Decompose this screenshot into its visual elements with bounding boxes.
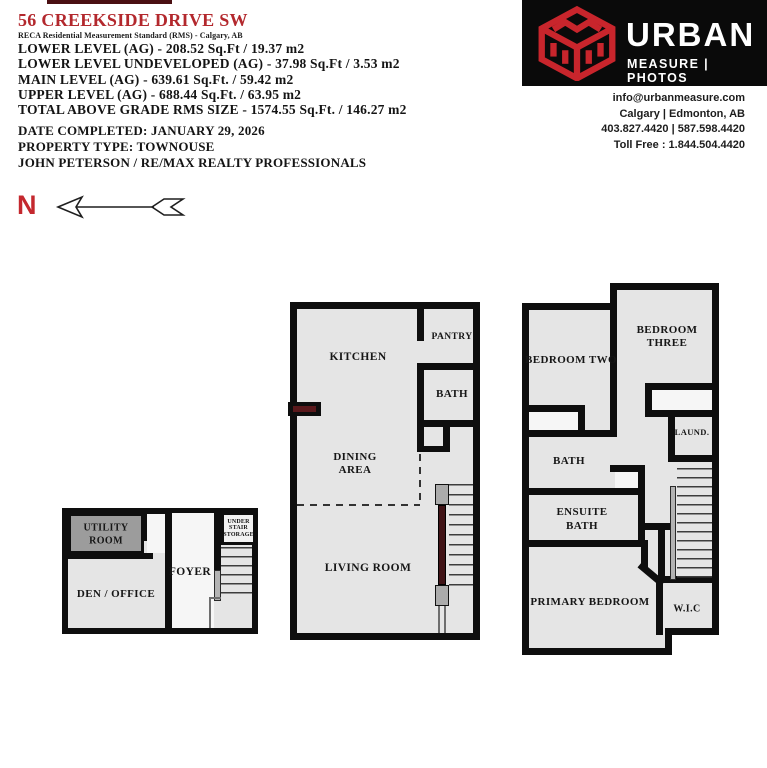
wall-segment xyxy=(522,303,617,310)
wall-segment xyxy=(529,430,617,437)
wall-segment xyxy=(141,513,147,541)
wall-segment xyxy=(522,488,645,495)
room-label-dining: AREA xyxy=(339,464,372,476)
room-label-bedroom-three: THREE xyxy=(647,337,688,349)
room-label-ensuite: BATH xyxy=(566,520,598,532)
wall-segment xyxy=(417,420,480,427)
stair-landing-line xyxy=(209,597,211,628)
wall-segment xyxy=(645,410,719,417)
main-stairs-railing xyxy=(438,505,446,585)
stair-wall-line xyxy=(444,606,446,633)
wall-segment xyxy=(656,583,663,635)
room-label-pantry: PANTRY xyxy=(432,332,473,342)
brand-name: URBAN xyxy=(626,16,755,54)
north-label: N xyxy=(17,190,37,221)
wall-segment xyxy=(610,283,719,290)
room-label-bath-upper: BATH xyxy=(553,455,585,467)
contact-block: info@urbanmeasure.com Calgary | Edmonton… xyxy=(601,91,745,153)
under-stair-label-line: STORAGE xyxy=(223,532,254,539)
wall-segment xyxy=(417,446,450,452)
room-label-laundry: LAUND. xyxy=(675,427,710,437)
utility-room-area xyxy=(68,513,144,554)
measurement-summary: LOWER LEVEL (AG) - 208.52 Sq.Ft / 19.37 … xyxy=(18,41,407,117)
measurement-line: TOTAL ABOVE GRADE RMS SIZE - 1574.55 Sq.… xyxy=(18,102,407,117)
wall-segment xyxy=(68,553,153,559)
date-completed-line: DATE COMPLETED: JANUARY 29, 2026 xyxy=(18,123,366,139)
wall-segment xyxy=(712,283,719,635)
wall-segment xyxy=(417,370,424,427)
wall-segment xyxy=(610,310,617,437)
upper-stairs-railing xyxy=(670,486,676,580)
room-label-dining: DINING xyxy=(333,451,376,463)
closet-fill xyxy=(652,390,712,410)
fireplace-icon xyxy=(293,406,316,412)
dining-boundary-dashed-line xyxy=(419,454,421,506)
main-stairs-newel-cap xyxy=(435,585,449,606)
wall-segment xyxy=(214,513,221,570)
room-label-ensuite: ENSUITE xyxy=(556,506,607,518)
measurement-standard-line: RECA Residential Measurement Standard (R… xyxy=(18,31,243,40)
wall-segment xyxy=(522,648,672,655)
north-arrow-icon xyxy=(52,193,192,221)
urban-measure-cube-logo-icon xyxy=(530,5,624,81)
room-label-den-office: DEN / OFFICE xyxy=(77,588,155,600)
measurement-line: MAIN LEVEL (AG) - 639.61 Sq.Ft. / 59.42 … xyxy=(18,72,407,87)
room-label-kitchen: KITCHEN xyxy=(329,351,386,363)
room-label-primary-bedroom: PRIMARY BEDROOM xyxy=(530,596,649,608)
stair-landing-line xyxy=(209,597,221,599)
lower-stairs-treads xyxy=(221,547,252,601)
under-stair-storage-area: UNDER STAIR STORAGE xyxy=(221,512,256,545)
main-stairs-newel-cap xyxy=(435,484,449,505)
report-details: DATE COMPLETED: JANUARY 29, 2026 PROPERT… xyxy=(18,123,366,170)
stair-wall-line xyxy=(438,606,440,633)
contact-tollfree: Toll Free : 1.844.504.4420 xyxy=(601,138,745,154)
contact-locations: Calgary | Edmonton, AB xyxy=(601,107,745,123)
brand-tagline: MEASURE | PHOTOS xyxy=(627,57,767,85)
lower-closet-fill xyxy=(147,514,165,553)
room-label-utility: UTILITY xyxy=(83,523,128,534)
wall-segment xyxy=(522,540,645,547)
agent-line: JOHN PETERSON / RE/MAX REALTY PROFESSION… xyxy=(18,155,366,171)
room-label-foyer: FOYER xyxy=(169,566,211,578)
closet-fill xyxy=(529,412,578,430)
measurement-line: LOWER LEVEL UNDEVELOPED (AG) - 37.98 Sq.… xyxy=(18,56,407,71)
floorplan-document-page: 56 CREEKSIDE DRIVE SW RECA Residential M… xyxy=(0,0,767,768)
measurement-line: LOWER LEVEL (AG) - 208.52 Sq.Ft / 19.37 … xyxy=(18,41,407,56)
room-label-living-room: LIVING ROOM xyxy=(325,562,412,574)
room-label-wic: W.I.C xyxy=(673,604,700,615)
wall-segment xyxy=(417,363,480,370)
upper-stairs-treads xyxy=(677,468,712,580)
wall-segment xyxy=(645,383,719,390)
wall-segment xyxy=(665,628,719,635)
dining-boundary-dashed-line xyxy=(297,504,420,506)
closet-fill xyxy=(615,472,638,488)
main-stairs-treads xyxy=(449,484,473,586)
wall-segment xyxy=(417,309,424,341)
upper-level-plan-area xyxy=(617,290,712,320)
measurement-line: UPPER LEVEL (AG) - 688.44 Sq.Ft. / 63.95… xyxy=(18,87,407,102)
room-label-bath: BATH xyxy=(436,388,468,400)
room-label-bedroom-two: BEDROOM TWO xyxy=(525,354,617,366)
property-type-line: PROPERTY TYPE: TOWNOUSE xyxy=(18,139,366,155)
contact-email: info@urbanmeasure.com xyxy=(601,91,745,107)
wall-segment xyxy=(658,523,665,576)
room-label-bedroom-three: BEDROOM xyxy=(637,324,698,336)
wall-segment xyxy=(529,405,585,412)
brand-logo-panel: URBAN MEASURE | PHOTOS xyxy=(522,0,767,86)
wall-segment xyxy=(668,455,712,462)
contact-phones: 403.827.4420 | 587.598.4420 xyxy=(601,122,745,138)
room-label-utility: ROOM xyxy=(89,536,123,547)
property-address-title: 56 CREEKSIDE DRIVE SW xyxy=(18,10,248,31)
upper-level-plan-area xyxy=(529,628,665,648)
top-edge-strip xyxy=(47,0,172,4)
